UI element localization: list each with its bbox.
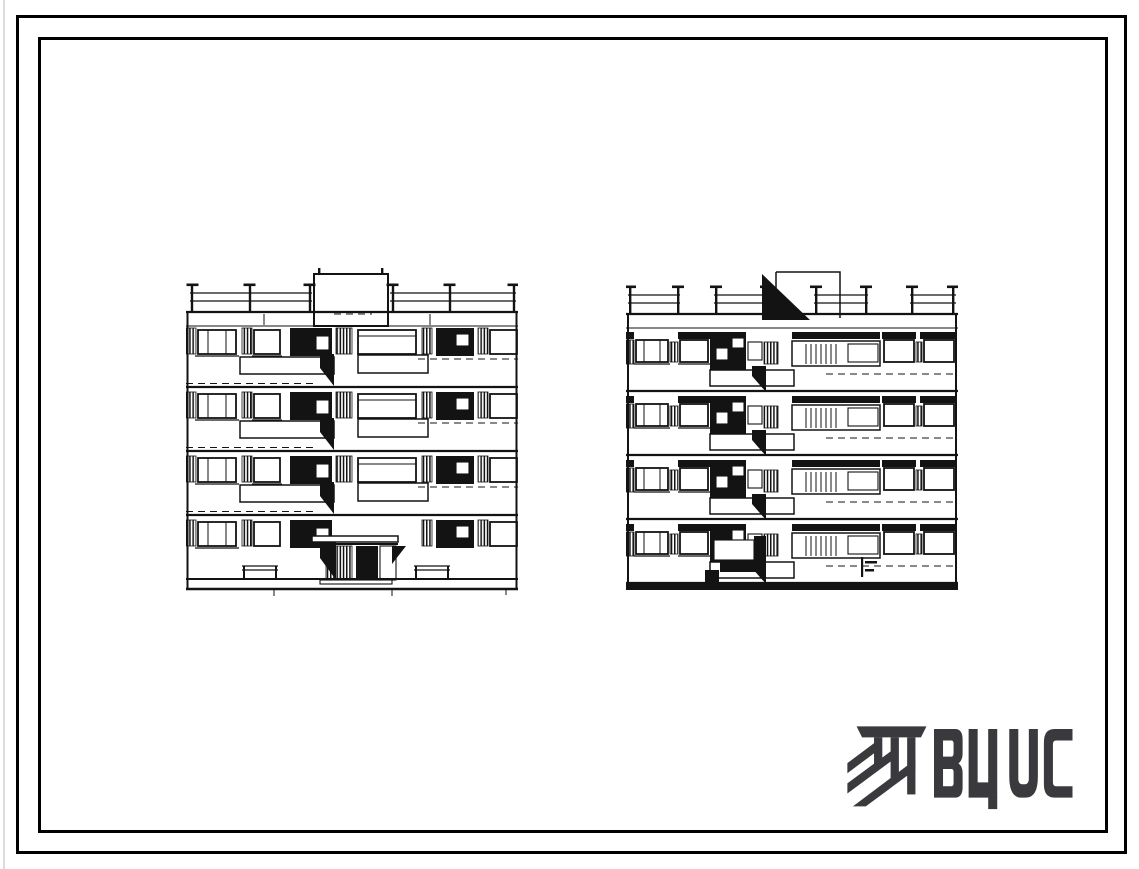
building-elevation-front <box>186 268 518 598</box>
scanned-drawing-sheet: ВЦИС <box>0 0 1139 869</box>
vcis-logo: ВЦИС <box>843 719 1074 811</box>
building-elevation-rear <box>626 268 958 598</box>
roof-penthouse-box <box>314 268 388 326</box>
floor-1-with-entrance <box>186 520 517 584</box>
section-mark <box>861 557 877 577</box>
floor-4 <box>186 328 518 387</box>
entrance <box>312 536 406 584</box>
floor-2 <box>186 456 518 515</box>
floor-3 <box>626 396 958 456</box>
floor-1 <box>626 524 958 584</box>
vcis-wordmark <box>934 729 1074 811</box>
letter-es <box>1044 729 1073 798</box>
floor-4 <box>626 332 958 392</box>
letter-tse <box>969 729 998 798</box>
floor-2 <box>626 460 958 520</box>
vcis-diagonal-stripes-mark-icon <box>843 719 929 811</box>
letter-ve <box>934 729 963 798</box>
roof-structure <box>762 272 840 320</box>
porch-railing-right <box>414 566 450 578</box>
letter-i <box>1009 729 1038 798</box>
scan-edge-artifact <box>3 0 5 869</box>
floor-3 <box>186 392 518 451</box>
ground-line <box>626 584 958 590</box>
porch-railing-left <box>242 566 278 578</box>
letter-tse-tail <box>988 797 997 809</box>
